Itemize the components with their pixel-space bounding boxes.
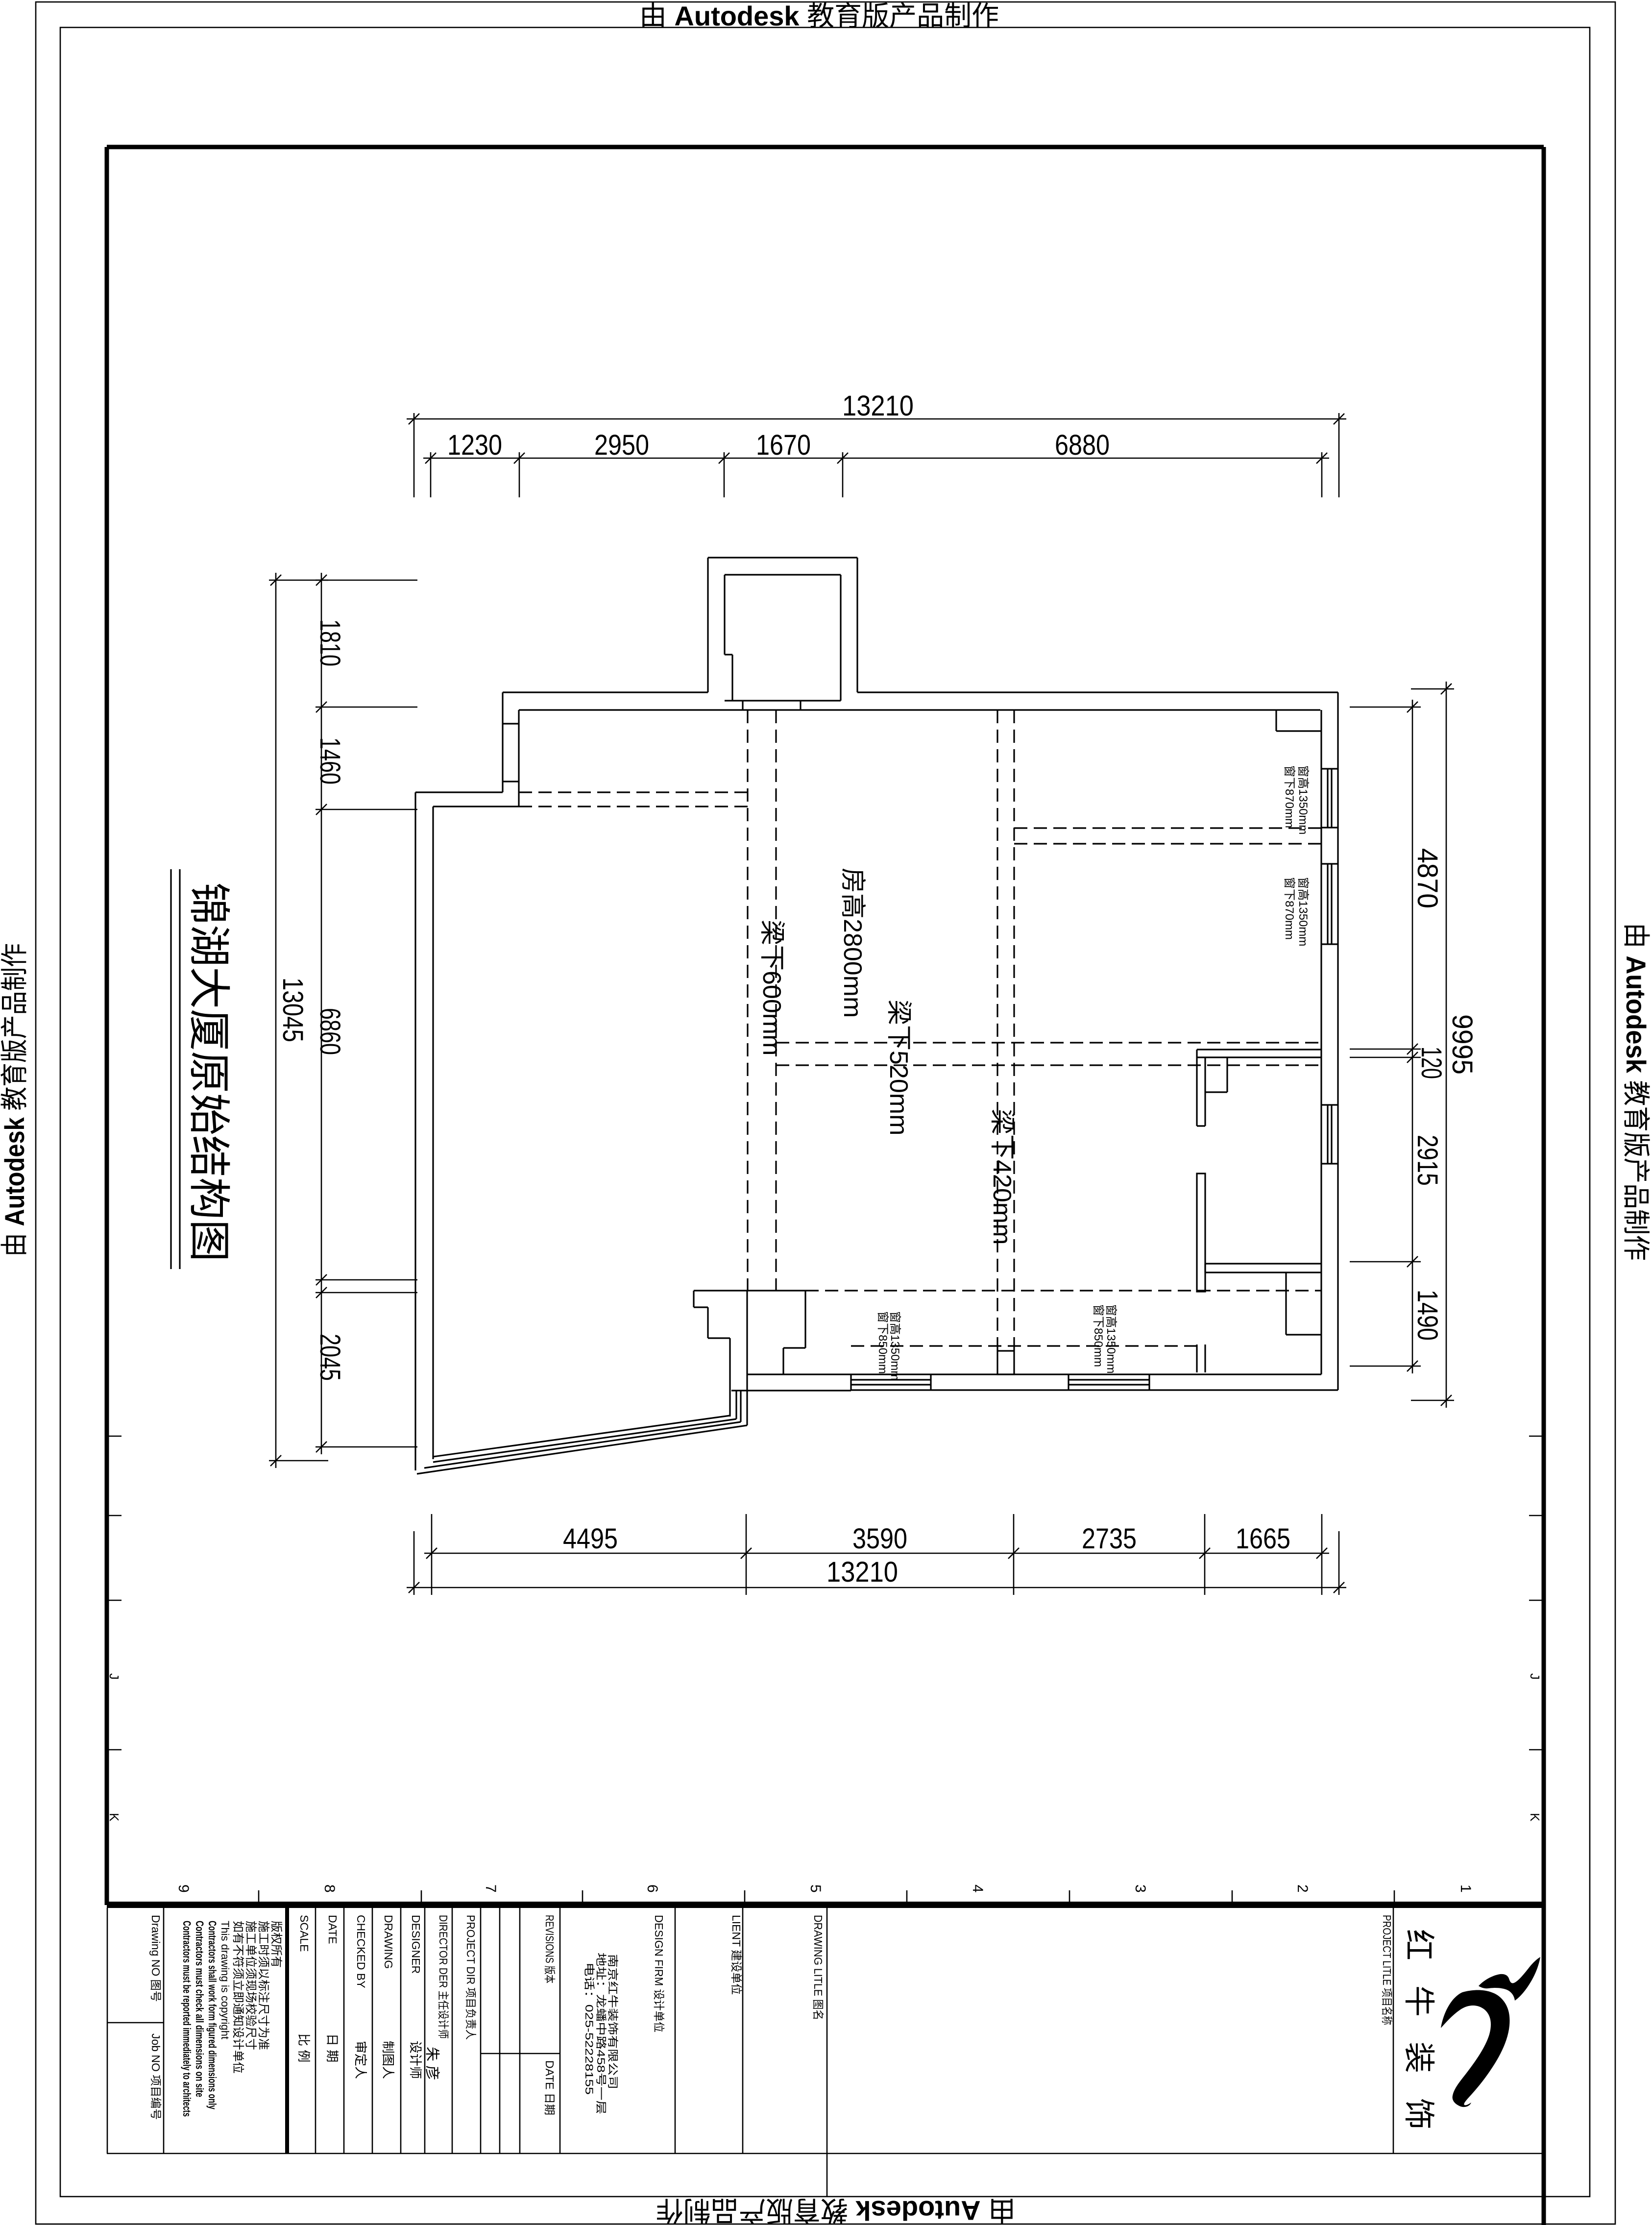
svg-text:1670: 1670 [756, 429, 811, 461]
svg-text:窗下850mm: 窗下850mm [1092, 1304, 1105, 1367]
svg-text:REVISIONS 版本: REVISIONS 版本 [543, 1915, 556, 1983]
svg-text:饰: 饰 [1401, 2098, 1436, 2129]
svg-text:1665: 1665 [1236, 1523, 1290, 1555]
svg-text:1: 1 [1458, 1884, 1474, 1893]
svg-text:DATE: DATE [326, 1915, 339, 1944]
svg-text:窗下870mm: 窗下870mm [1283, 765, 1296, 828]
svg-text:6: 6 [644, 1884, 660, 1893]
svg-text:牛: 牛 [1401, 1985, 1436, 2017]
svg-text:1230: 1230 [447, 429, 502, 461]
svg-text:由 Autodesk 教育版产品制作: 由 Autodesk 教育版产品制作 [0, 943, 30, 1257]
svg-text:Drawing NO 图号: Drawing NO 图号 [149, 1915, 162, 2002]
svg-text:9: 9 [175, 1884, 192, 1893]
svg-text:施工单位须现场校验尺寸: 施工单位须现场校验尺寸 [244, 1921, 257, 2050]
svg-text:梁下420mm: 梁下420mm [988, 1109, 1016, 1245]
svg-text:DESIGNER: DESIGNER [410, 1915, 422, 1974]
svg-text:1490: 1490 [1411, 1290, 1443, 1341]
svg-text:Contractors must check all dim: Contractors must check all dimensions on… [194, 1921, 206, 2097]
svg-text:9995: 9995 [1446, 1014, 1478, 1075]
svg-text:Job NO 项目编号: Job NO 项目编号 [149, 2033, 162, 2120]
svg-text:窗下850mm: 窗下850mm [876, 1311, 889, 1374]
svg-text:3590: 3590 [852, 1523, 907, 1555]
svg-text:PROJECT DIR 项目负责人: PROJECT DIR 项目负责人 [464, 1915, 477, 2040]
svg-text:This drawing is copyright: This drawing is copyright [219, 1921, 231, 2039]
svg-text:4: 4 [970, 1884, 986, 1893]
svg-text:1460: 1460 [314, 737, 346, 784]
svg-text:LIENT 建设单位: LIENT 建设单位 [730, 1915, 743, 1995]
svg-text:J: J [107, 1673, 121, 1680]
svg-text:地址：龙蟠中路458号一层: 地址：龙蟠中路458号一层 [595, 1953, 607, 2114]
svg-text:3: 3 [1132, 1884, 1148, 1893]
svg-text:如有不符须立即通知设计单位: 如有不符须立即通知设计单位 [231, 1921, 244, 2074]
svg-text:120: 120 [1415, 1047, 1447, 1079]
svg-text:由 Autodesk 教育版产品制作: 由 Autodesk 教育版产品制作 [1621, 923, 1652, 1261]
svg-text:审定人: 审定人 [353, 2041, 368, 2079]
svg-text:设计师: 设计师 [408, 2041, 423, 2079]
svg-text:K: K [107, 1813, 121, 1822]
svg-text:4495: 4495 [563, 1523, 618, 1555]
svg-text:DATE 日期: DATE 日期 [543, 2060, 556, 2115]
svg-text:窗高1350mm: 窗高1350mm [1104, 1304, 1118, 1373]
svg-text:梁下520mm: 梁下520mm [884, 1000, 913, 1135]
svg-text:6860: 6860 [314, 1008, 346, 1055]
svg-text:5: 5 [807, 1884, 824, 1893]
svg-text:施工时须以标注尺寸为准: 施工时须以标注尺寸为准 [257, 1921, 270, 2050]
svg-text:DRAWING LITLE 图名: DRAWING LITLE 图名 [812, 1915, 825, 2020]
svg-text:K: K [1528, 1813, 1542, 1822]
svg-text:Contractors must be reported i: Contractors must be reported immediately… [181, 1921, 193, 2117]
svg-text:电话：025-52228155: 电话：025-52228155 [583, 1962, 595, 2095]
svg-text:J: J [1528, 1673, 1542, 1680]
svg-text:8: 8 [321, 1884, 338, 1893]
svg-text:版权所有: 版权所有 [269, 1921, 283, 1968]
svg-text:窗高1350mm: 窗高1350mm [888, 1311, 901, 1380]
svg-text:2735: 2735 [1082, 1523, 1137, 1555]
svg-text:制图人: 制图人 [381, 2041, 395, 2079]
svg-text:朱 彦: 朱 彦 [424, 2047, 440, 2080]
svg-text:红: 红 [1401, 1929, 1436, 1960]
svg-text:装: 装 [1401, 2042, 1436, 2073]
svg-text:7: 7 [483, 1884, 499, 1893]
svg-text:4870: 4870 [1411, 848, 1443, 908]
svg-text:窗高1350mm: 窗高1350mm [1296, 765, 1310, 834]
svg-text:SCALE: SCALE [298, 1915, 311, 1952]
svg-text:CHECKED BY: CHECKED BY [355, 1915, 367, 1988]
svg-text:2: 2 [1294, 1884, 1311, 1893]
svg-text:PROJECT LITLE 项目名称: PROJECT LITLE 项目名称 [1381, 1915, 1393, 2025]
svg-text:2915: 2915 [1411, 1135, 1443, 1186]
svg-text:房高2800mm: 房高2800mm [838, 868, 867, 1018]
svg-text:DIRECTOR DER 主任设计师: DIRECTOR DER 主任设计师 [437, 1915, 450, 2039]
svg-text:13210: 13210 [842, 390, 914, 422]
svg-text:13210: 13210 [826, 1556, 898, 1588]
svg-text:锦湖大厦原始结构图: 锦湖大厦原始结构图 [185, 882, 232, 1262]
svg-text:2950: 2950 [594, 429, 649, 461]
svg-text:13045: 13045 [277, 978, 309, 1042]
svg-text:比 例: 比 例 [296, 2033, 311, 2062]
svg-text:由 Autodesk 教育版产品制作: 由 Autodesk 教育版产品制作 [639, 0, 999, 31]
svg-text:日 期: 日 期 [325, 2033, 340, 2062]
svg-text:窗高1350mm: 窗高1350mm [1296, 877, 1310, 946]
svg-text:DRAWING: DRAWING [382, 1915, 395, 1969]
svg-text:Contractors shall work form fi: Contractors shall work form figured dime… [206, 1921, 219, 2110]
svg-text:2045: 2045 [314, 1334, 346, 1381]
svg-text:6880: 6880 [1055, 429, 1110, 461]
svg-text:梁下600mm: 梁下600mm [757, 920, 786, 1055]
svg-text:南京红牛装饰有限公司: 南京红牛装饰有限公司 [607, 1954, 619, 2089]
svg-text:由 Autodesk 教育版产品制作: 由 Autodesk 教育版产品制作 [656, 2195, 1016, 2225]
svg-text:DESIGN FIRM 设计单位: DESIGN FIRM 设计单位 [653, 1915, 665, 2032]
svg-text:1810: 1810 [314, 619, 346, 666]
svg-text:窗下870mm: 窗下870mm [1283, 877, 1296, 940]
